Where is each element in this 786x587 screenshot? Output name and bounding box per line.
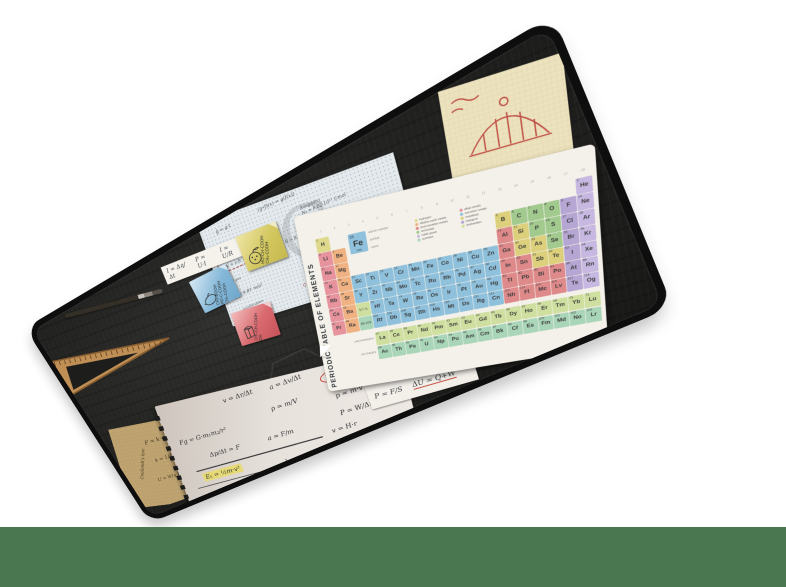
element-cell: 117Ts [566, 274, 583, 292]
element-cell: 115Mc [534, 281, 551, 298]
element-cell: 93Np [433, 334, 449, 350]
group-number: 4 [356, 219, 371, 225]
handwritten-formula: ĝ = g·t [215, 223, 232, 235]
group-number: 11 [460, 194, 476, 201]
lanthanides-label: LANTHANIDES [335, 337, 374, 347]
element-cell: 63Eu [460, 314, 476, 330]
element-cell: 57La [375, 330, 391, 345]
element-cell: 116Lv [550, 278, 567, 295]
group-number: 16 [540, 175, 557, 182]
desk-mat: Coulomb's law F = k·q₁q₂ / r² k = 1/4πε₀… [25, 15, 673, 523]
group-number: 8 [414, 205, 430, 212]
page-curl [320, 345, 332, 357]
group-number: 5 [370, 215, 385, 221]
element-cell: 102No [569, 309, 586, 326]
group-number: 18 [574, 167, 591, 174]
element-cell: 100Fm [538, 315, 554, 332]
handwritten-formula: c = Q/m·ΔT [335, 431, 377, 451]
element-cell: 92U [419, 337, 435, 353]
element-cell: 114Fl [519, 284, 536, 301]
element-cell: 113Nh [503, 287, 519, 304]
handwritten-formula: P = U·I [194, 250, 218, 270]
pencil [64, 289, 163, 319]
handwritten-formula: Fg = G·m₁m₂/r² [178, 426, 228, 447]
element-cell: 96Cm [477, 326, 493, 342]
element-cell: 112Cn [488, 290, 504, 307]
group-number: 9 [429, 201, 445, 208]
element-cell: 61Pm [431, 320, 447, 336]
handwritten-formula: a = F/m [266, 427, 295, 442]
group-number: 3 [341, 222, 356, 228]
element-cell: 69Tm [552, 297, 569, 314]
set-square-ruler [44, 325, 190, 407]
element-cell: 110Ds [458, 296, 474, 313]
element-cell: 103Lr [585, 306, 602, 323]
group-number: 15 [524, 179, 541, 186]
element-cell: 65Tb [490, 309, 506, 325]
group-number: 6 [384, 212, 399, 218]
handwritten-formula: I = Δq/Δt [166, 259, 194, 280]
product-photo-canvas: Coulomb's law F = k·q₁q₂ / r² k = 1/4πε₀… [0, 0, 786, 587]
sticky-formula: HO-CH-COOH CH₂-COOH [260, 235, 271, 264]
kraft-title: Coulomb's law [139, 448, 145, 480]
handwritten-formula: Δp/Δt = F [208, 443, 241, 458]
handwritten-formula: f = 1/T [251, 475, 275, 487]
element-cell: 89-103 [358, 315, 374, 331]
group-number: 13 [491, 186, 507, 193]
group-number: 14 [508, 182, 525, 189]
handwritten-formula: v = p/m [306, 460, 334, 474]
handwritten-formula: λ = v·T [283, 452, 309, 465]
group-number: 7 [399, 208, 414, 214]
element-cell: 101Md [553, 312, 570, 329]
element-cell: 59Pr [403, 325, 419, 341]
element-cell: 99Es [522, 318, 538, 334]
element-cell: 90Th [391, 342, 407, 357]
handwritten-formula: ρ = m/V [269, 397, 298, 413]
element-cell: 105Db [386, 310, 402, 326]
element-cell: 60Nd [417, 322, 433, 338]
element-cell: 107Bh [414, 304, 430, 320]
element-cell: 68Er [536, 300, 553, 317]
actinides-label: ACTINIDES [338, 351, 376, 360]
bottom-color-bar [0, 527, 786, 587]
handwritten-formula: P = F/S [373, 385, 403, 401]
sticky-formula: CH₃-CH-COOH OH [254, 313, 263, 340]
element-cell: 118Og [583, 271, 600, 289]
element-cell: 88Ra [345, 318, 360, 334]
element-cell: 97Bk [492, 323, 508, 339]
element-cell: 109Mt [443, 299, 459, 315]
element-cell: 66Dy [505, 306, 521, 323]
element-cell: 98Cf [507, 321, 523, 337]
group-number: 2 [327, 225, 342, 231]
element-cell: 67Ho [521, 303, 537, 320]
element-cell: 95Am [462, 329, 478, 345]
element-cell: 71Lu [584, 291, 601, 308]
element-cell: 70Yb [568, 294, 585, 311]
handwritten-formula: P = W/Δt [339, 399, 374, 416]
handwritten-formula: (g∘f)(x) = g(f(x)) [257, 191, 296, 213]
group-number: 12 [476, 190, 492, 197]
element-cell: 104Rf [372, 313, 388, 329]
element-cell: 62Sm [445, 317, 461, 333]
element-cell: 111Rg [473, 293, 489, 310]
element-cell: 89Ac [377, 344, 392, 359]
sticky-formula: CH₂-COOH HO-C-COOH CH₂-COOH [212, 280, 230, 305]
element-cell: 91Pa [405, 339, 421, 354]
handwritten-formula: Cp–Cv = R [349, 444, 389, 462]
handwritten-formula: Eₖ = ½m·v² [202, 463, 244, 481]
group-number: 17 [557, 171, 574, 178]
element-cell: 58Ce [389, 328, 405, 344]
group-number: 10 [444, 198, 460, 205]
element-cell: 106Sg [400, 307, 416, 323]
element-cell: 64Gd [475, 311, 491, 327]
natec-logo: natec [268, 471, 336, 506]
group-number: 1 [314, 229, 328, 235]
handwritten-formula: v = Δr/Δt [221, 388, 253, 405]
handwritten-formula: v = H·r [331, 419, 359, 434]
element-cell: 94Pu [447, 331, 463, 347]
element-cell: 108Hs [428, 301, 444, 317]
